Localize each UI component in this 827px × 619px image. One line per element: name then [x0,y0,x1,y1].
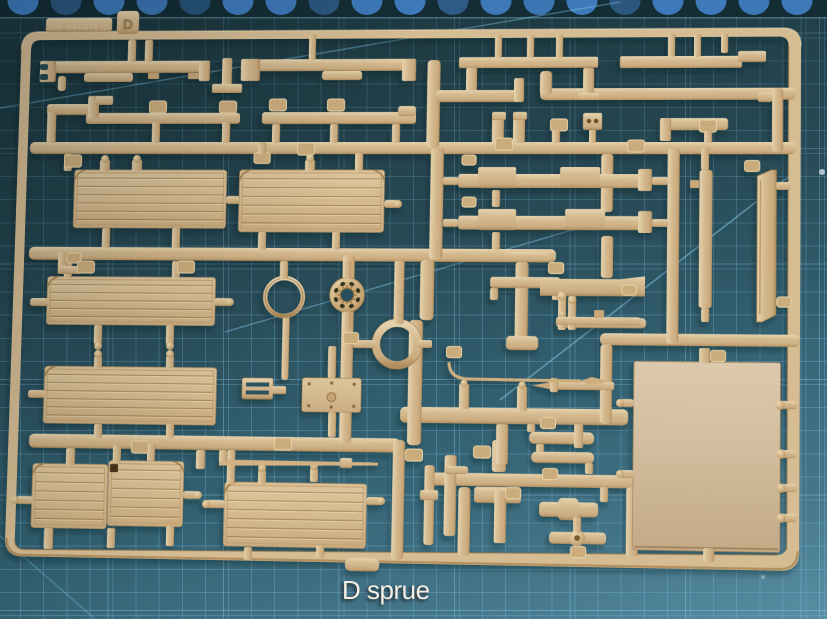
svg-text:D: D [123,17,134,32]
svg-text:1/35 Bedford QL: 1/35 Bedford QL [46,21,112,30]
